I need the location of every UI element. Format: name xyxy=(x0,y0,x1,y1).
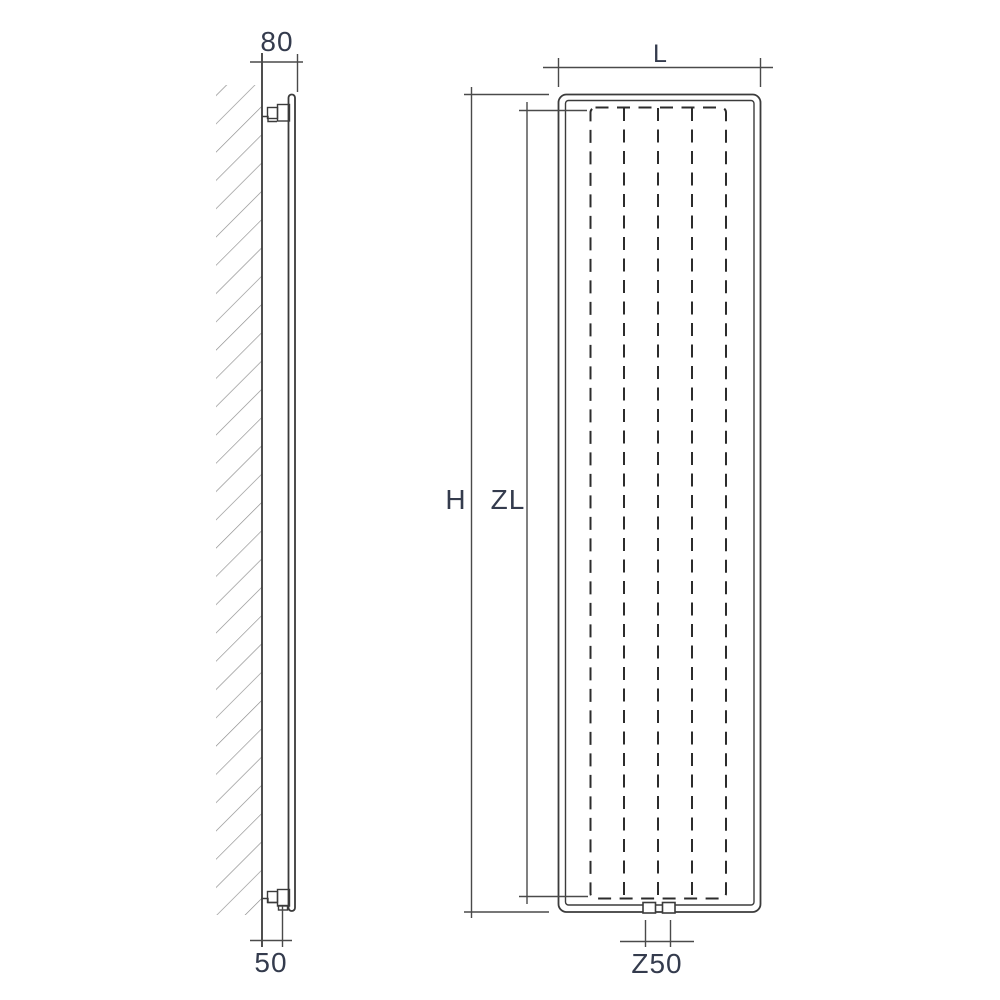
dim-ZL: ZL xyxy=(491,102,588,904)
side-view: 80 50 xyxy=(216,26,303,978)
dim-label-inner-height: ZL xyxy=(491,484,526,515)
front-view: L H ZL Z50 xyxy=(445,40,773,979)
dim-label-wall-clearance-bottom: 50 xyxy=(254,947,287,978)
mounting-bracket-bottom xyxy=(262,890,290,911)
dim-L: L xyxy=(543,40,773,87)
mounting-bracket-top xyxy=(262,105,290,122)
dim-label-width: L xyxy=(653,40,667,68)
dim-Z50: Z50 xyxy=(620,920,694,979)
dim-80: 80 xyxy=(250,26,303,92)
dim-label-connection-spacing: Z50 xyxy=(631,948,682,979)
connection-stub-left xyxy=(643,903,656,914)
radiator-side-panel xyxy=(289,95,296,912)
dim-label-height: H xyxy=(445,484,466,515)
dim-50: 50 xyxy=(250,906,292,978)
radiator-dimension-drawing: 80 50 xyxy=(0,0,1000,1000)
connection-stub-right xyxy=(663,903,676,914)
convector-hidden-lines xyxy=(591,108,727,899)
radiator-front-outline xyxy=(559,95,761,913)
drawing-svg: 80 50 xyxy=(0,0,1000,1000)
dim-label-wall-clearance-top: 80 xyxy=(260,26,293,57)
wall-hatch xyxy=(216,85,262,915)
